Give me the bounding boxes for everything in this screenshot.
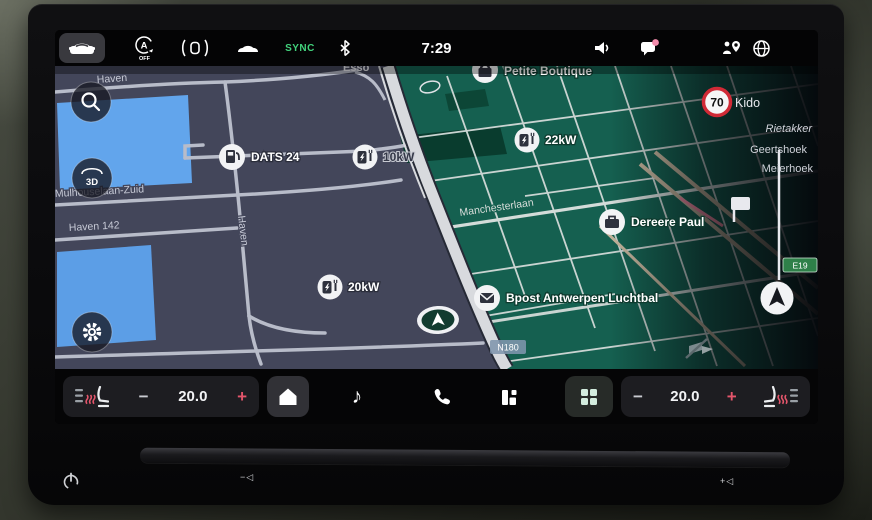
user-location-icon bbox=[722, 40, 742, 56]
svg-text:E19: E19 bbox=[792, 261, 807, 271]
car-icon bbox=[67, 38, 97, 58]
bluetooth-status[interactable] bbox=[333, 30, 357, 66]
3d-label: 3D bbox=[86, 177, 98, 188]
svg-text:10kW: 10kW bbox=[383, 150, 415, 164]
volume-slider[interactable] bbox=[140, 448, 790, 468]
volume-down-mark[interactable]: −◁ bbox=[240, 472, 254, 483]
power-icon bbox=[62, 472, 80, 490]
volume-up-mark[interactable]: +◁ bbox=[720, 476, 734, 487]
home-icon bbox=[278, 387, 298, 406]
volume-status[interactable] bbox=[588, 30, 616, 66]
svg-text:DATS 24: DATS 24 bbox=[251, 150, 300, 164]
phone-button[interactable] bbox=[422, 376, 462, 417]
lane-assist-icon bbox=[181, 39, 209, 57]
power-button[interactable] bbox=[62, 472, 80, 495]
temp-left-value: 20.0 bbox=[178, 388, 207, 405]
road-shield-n180: N180 bbox=[490, 340, 526, 354]
statusbar-shadow bbox=[55, 66, 818, 74]
svg-text:70: 70 bbox=[710, 96, 724, 110]
start-stop-off-indicator[interactable]: A OFF bbox=[127, 30, 161, 66]
tiles-icon bbox=[501, 388, 518, 406]
home-button[interactable] bbox=[267, 376, 309, 417]
lane-assist-indicator[interactable] bbox=[177, 30, 213, 66]
speed-limit-sign: 70 bbox=[704, 89, 731, 116]
music-note-icon: ♪ bbox=[352, 385, 363, 409]
status-bar: A OFF SYNC bbox=[55, 30, 818, 66]
notification-badge bbox=[652, 39, 659, 46]
svg-text:Bpost Antwerpen Luchtbal: Bpost Antwerpen Luchtbal bbox=[506, 291, 658, 305]
message-icon bbox=[640, 39, 660, 57]
svg-text:Dereere Paul: Dereere Paul bbox=[631, 215, 704, 229]
svg-text:22kW: 22kW bbox=[545, 133, 577, 147]
map-search-button[interactable] bbox=[71, 82, 111, 122]
svg-text:N180: N180 bbox=[497, 343, 519, 353]
map-settings-button[interactable] bbox=[72, 312, 112, 352]
place-label-kido: Kido bbox=[735, 96, 760, 110]
online-services[interactable] bbox=[747, 30, 775, 66]
temp-right-decrease-button[interactable]: − bbox=[633, 387, 643, 407]
clock-time: 7:29 bbox=[421, 40, 451, 57]
svg-text:20kW: 20kW bbox=[348, 280, 380, 294]
temp-left-decrease-button[interactable]: − bbox=[139, 387, 149, 407]
temp-right-value: 20.0 bbox=[670, 388, 699, 405]
speaker-icon bbox=[593, 40, 611, 56]
clock: 7:29 bbox=[421, 30, 451, 66]
map-3d-toggle-button[interactable]: 3D bbox=[72, 158, 112, 198]
infotainment-device: A OFF SYNC bbox=[28, 4, 844, 505]
vehicle-connect-indicator[interactable] bbox=[231, 30, 265, 66]
place-label-rietakker: Rietakker bbox=[766, 123, 814, 135]
seat-heating-left-icon[interactable] bbox=[75, 386, 109, 408]
place-label-meierhoek: Meierhoek bbox=[762, 163, 814, 175]
touch-display: A OFF SYNC bbox=[55, 30, 818, 424]
svg-text:OFF: OFF bbox=[139, 56, 151, 62]
bottom-dock: − 20.0 + ♪ bbox=[55, 369, 818, 424]
bezel-chin: −◁ +◁ bbox=[28, 424, 844, 505]
vehicle-status-button[interactable] bbox=[59, 33, 105, 63]
sync-status: SYNC bbox=[279, 30, 321, 66]
street-label-haven: Haven bbox=[96, 72, 127, 86]
compass-button[interactable] bbox=[761, 282, 794, 315]
sync-label: SYNC bbox=[285, 43, 315, 54]
climate-right-control: − 20.0 + bbox=[621, 376, 810, 417]
envelope-icon bbox=[480, 293, 494, 303]
temp-right-increase-button[interactable]: + bbox=[727, 387, 737, 407]
media-button[interactable]: ♪ bbox=[337, 376, 377, 417]
temp-left-increase-button[interactable]: + bbox=[237, 387, 247, 407]
car-silhouette-icon bbox=[236, 42, 260, 54]
bluetooth-icon bbox=[339, 39, 351, 57]
navigation-map[interactable]: N180 Haven Haven Mulhouselaan-Zuid Haven… bbox=[55, 66, 818, 369]
app-grid-icon bbox=[580, 388, 598, 406]
globe-icon bbox=[752, 39, 771, 58]
user-profile[interactable] bbox=[717, 30, 747, 66]
notifications[interactable] bbox=[636, 30, 664, 66]
road-shield-e19: E19 bbox=[783, 258, 817, 272]
phone-icon bbox=[432, 387, 452, 407]
climate-left-control: − 20.0 + bbox=[63, 376, 259, 417]
a-off-icon: A OFF bbox=[131, 34, 157, 62]
svg-text:A: A bbox=[141, 41, 148, 52]
seat-heating-right-icon[interactable] bbox=[764, 386, 798, 408]
place-label-geertshoek: Geertshoek bbox=[750, 144, 807, 156]
app-launcher-button[interactable] bbox=[565, 376, 613, 417]
widgets-button[interactable] bbox=[489, 376, 529, 417]
